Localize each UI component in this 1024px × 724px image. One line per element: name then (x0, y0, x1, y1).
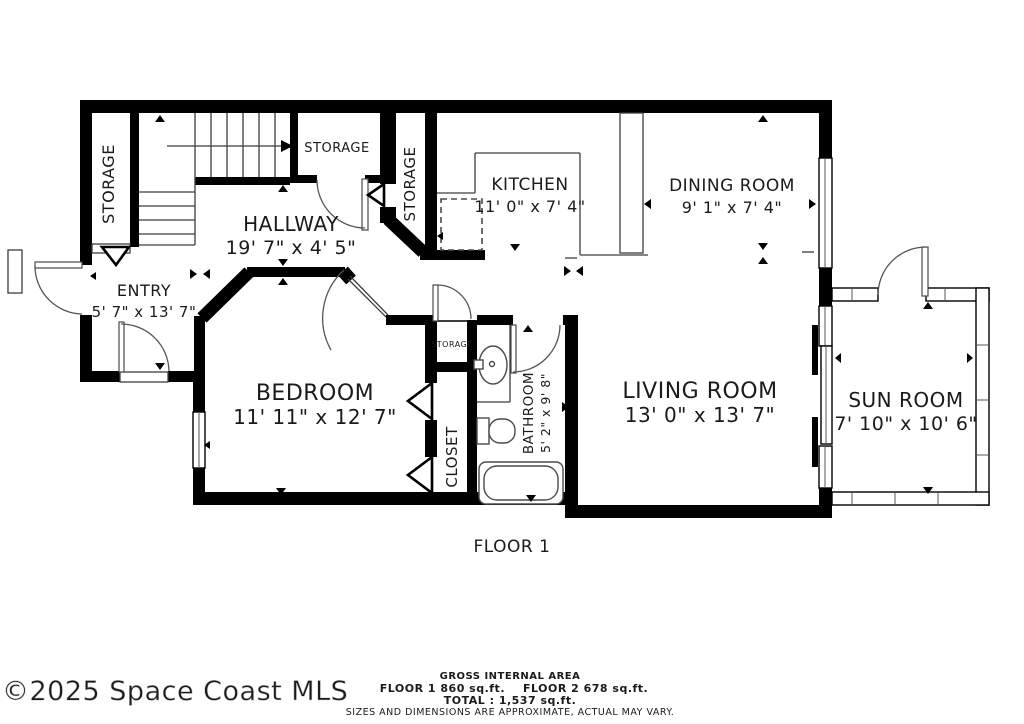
toilet-icon (477, 418, 515, 444)
front-door (119, 322, 169, 382)
door-swing-icon (323, 270, 344, 350)
measure-arrow-icon (437, 232, 443, 240)
room-label-storage-mid: STORAGE (304, 141, 369, 156)
room-label-bathroom: BATHROOM (521, 372, 537, 454)
room-dims-hallway: 19' 7" x 4' 5" (226, 237, 357, 259)
room-label-living: LIVING ROOM (622, 379, 777, 404)
measure-arrow-icon (278, 259, 288, 266)
footer-disclaimer: SIZES AND DIMENSIONS ARE APPROXIMATE, AC… (346, 707, 674, 718)
measure-arrow-icon (967, 353, 973, 363)
folding-door-icon (102, 247, 129, 265)
room-dims-sunroom: 7' 10" x 10' 6" (834, 413, 977, 435)
folding-door-icon (408, 457, 432, 493)
sliding-glass-door (821, 346, 832, 444)
window-bedroom-left (193, 412, 205, 468)
measure-arrow-icon (278, 185, 288, 192)
measure-arrow-icon (90, 272, 96, 280)
measure-arrow-icon (203, 269, 210, 279)
floor-label: FLOOR 1 (474, 537, 551, 557)
sink-icon (474, 346, 507, 384)
room-label-storage-small: STORAGE (431, 340, 473, 349)
folding-door-icon (368, 184, 384, 206)
sunroom-door (878, 247, 928, 296)
door-swing-icon (513, 325, 560, 372)
room-dims-kitchen: 11' 0" x 7' 4" (474, 197, 585, 216)
door-swing-icon (878, 247, 926, 295)
room-label-storage-upper: STORAGE (401, 147, 419, 222)
room-label-sunroom: SUN ROOM (848, 388, 963, 412)
room-label-kitchen: KITCHEN (491, 175, 568, 195)
room-label-entry: ENTRY (117, 281, 171, 300)
floorplan-page: STORAGE STORAGE STORAGE HALLWAY 19' 7" x… (0, 0, 1024, 724)
room-label-dining: DINING ROOM (669, 176, 795, 196)
measure-arrow-icon (758, 115, 768, 122)
hall-storage-door (433, 285, 471, 321)
window-living-upper (819, 306, 832, 346)
room-dims-dining: 9' 1" x 7' 4" (682, 198, 783, 217)
measure-arrow-icon (576, 266, 583, 276)
entry-exterior-door (35, 262, 82, 314)
measure-arrow-icon (758, 243, 768, 250)
room-label-hallway: HALLWAY (243, 212, 339, 236)
footer-total: TOTAL : 1,537 sq.ft. (444, 694, 577, 707)
measure-arrow-icon (510, 244, 520, 251)
footer: GROSS INTERNAL AREA FLOOR 1 860 sq.ft. F… (346, 671, 674, 718)
measure-arrow-icon (278, 278, 288, 285)
door-swing-icon (438, 285, 471, 319)
room-dims-bathroom: 5' 2" x 9' 8" (538, 373, 553, 453)
measure-arrow-icon (155, 363, 165, 370)
measure-arrow-icon (564, 266, 571, 276)
room-label-bedroom: BEDROOM (256, 381, 374, 406)
room-dims-living: 13' 0" x 13' 7" (625, 403, 776, 427)
measure-arrow-icon (809, 199, 816, 209)
room-dims-entry: 5' 7" x 13' 7" (92, 303, 197, 321)
measure-arrow-icon (523, 325, 533, 332)
window-living-lower (819, 446, 832, 488)
room-label-closet: CLOSET (443, 426, 461, 488)
measure-arrow-icon (923, 302, 933, 309)
window-dining-right (819, 158, 832, 268)
measure-arrow-icon (644, 199, 651, 209)
measure-arrow-icon (155, 115, 165, 122)
watermark: ©2025 Space Coast MLS (2, 676, 348, 707)
bedroom-door (323, 270, 388, 350)
measure-arrow-icon (190, 269, 197, 279)
bathroom-door (511, 325, 560, 373)
floorplan-drawing: STORAGE STORAGE STORAGE HALLWAY 19' 7" x… (0, 0, 1024, 724)
door-swing-icon (35, 266, 82, 314)
folding-door-icon (408, 383, 432, 419)
footer-gross-label: GROSS INTERNAL AREA (440, 671, 581, 682)
measure-arrow-icon (758, 257, 768, 264)
room-label-storage-left: STORAGE (99, 144, 118, 224)
bathtub-icon (479, 462, 563, 504)
measure-arrow-icon (835, 353, 841, 363)
room-dims-bedroom: 11' 11" x 12' 7" (233, 405, 397, 429)
